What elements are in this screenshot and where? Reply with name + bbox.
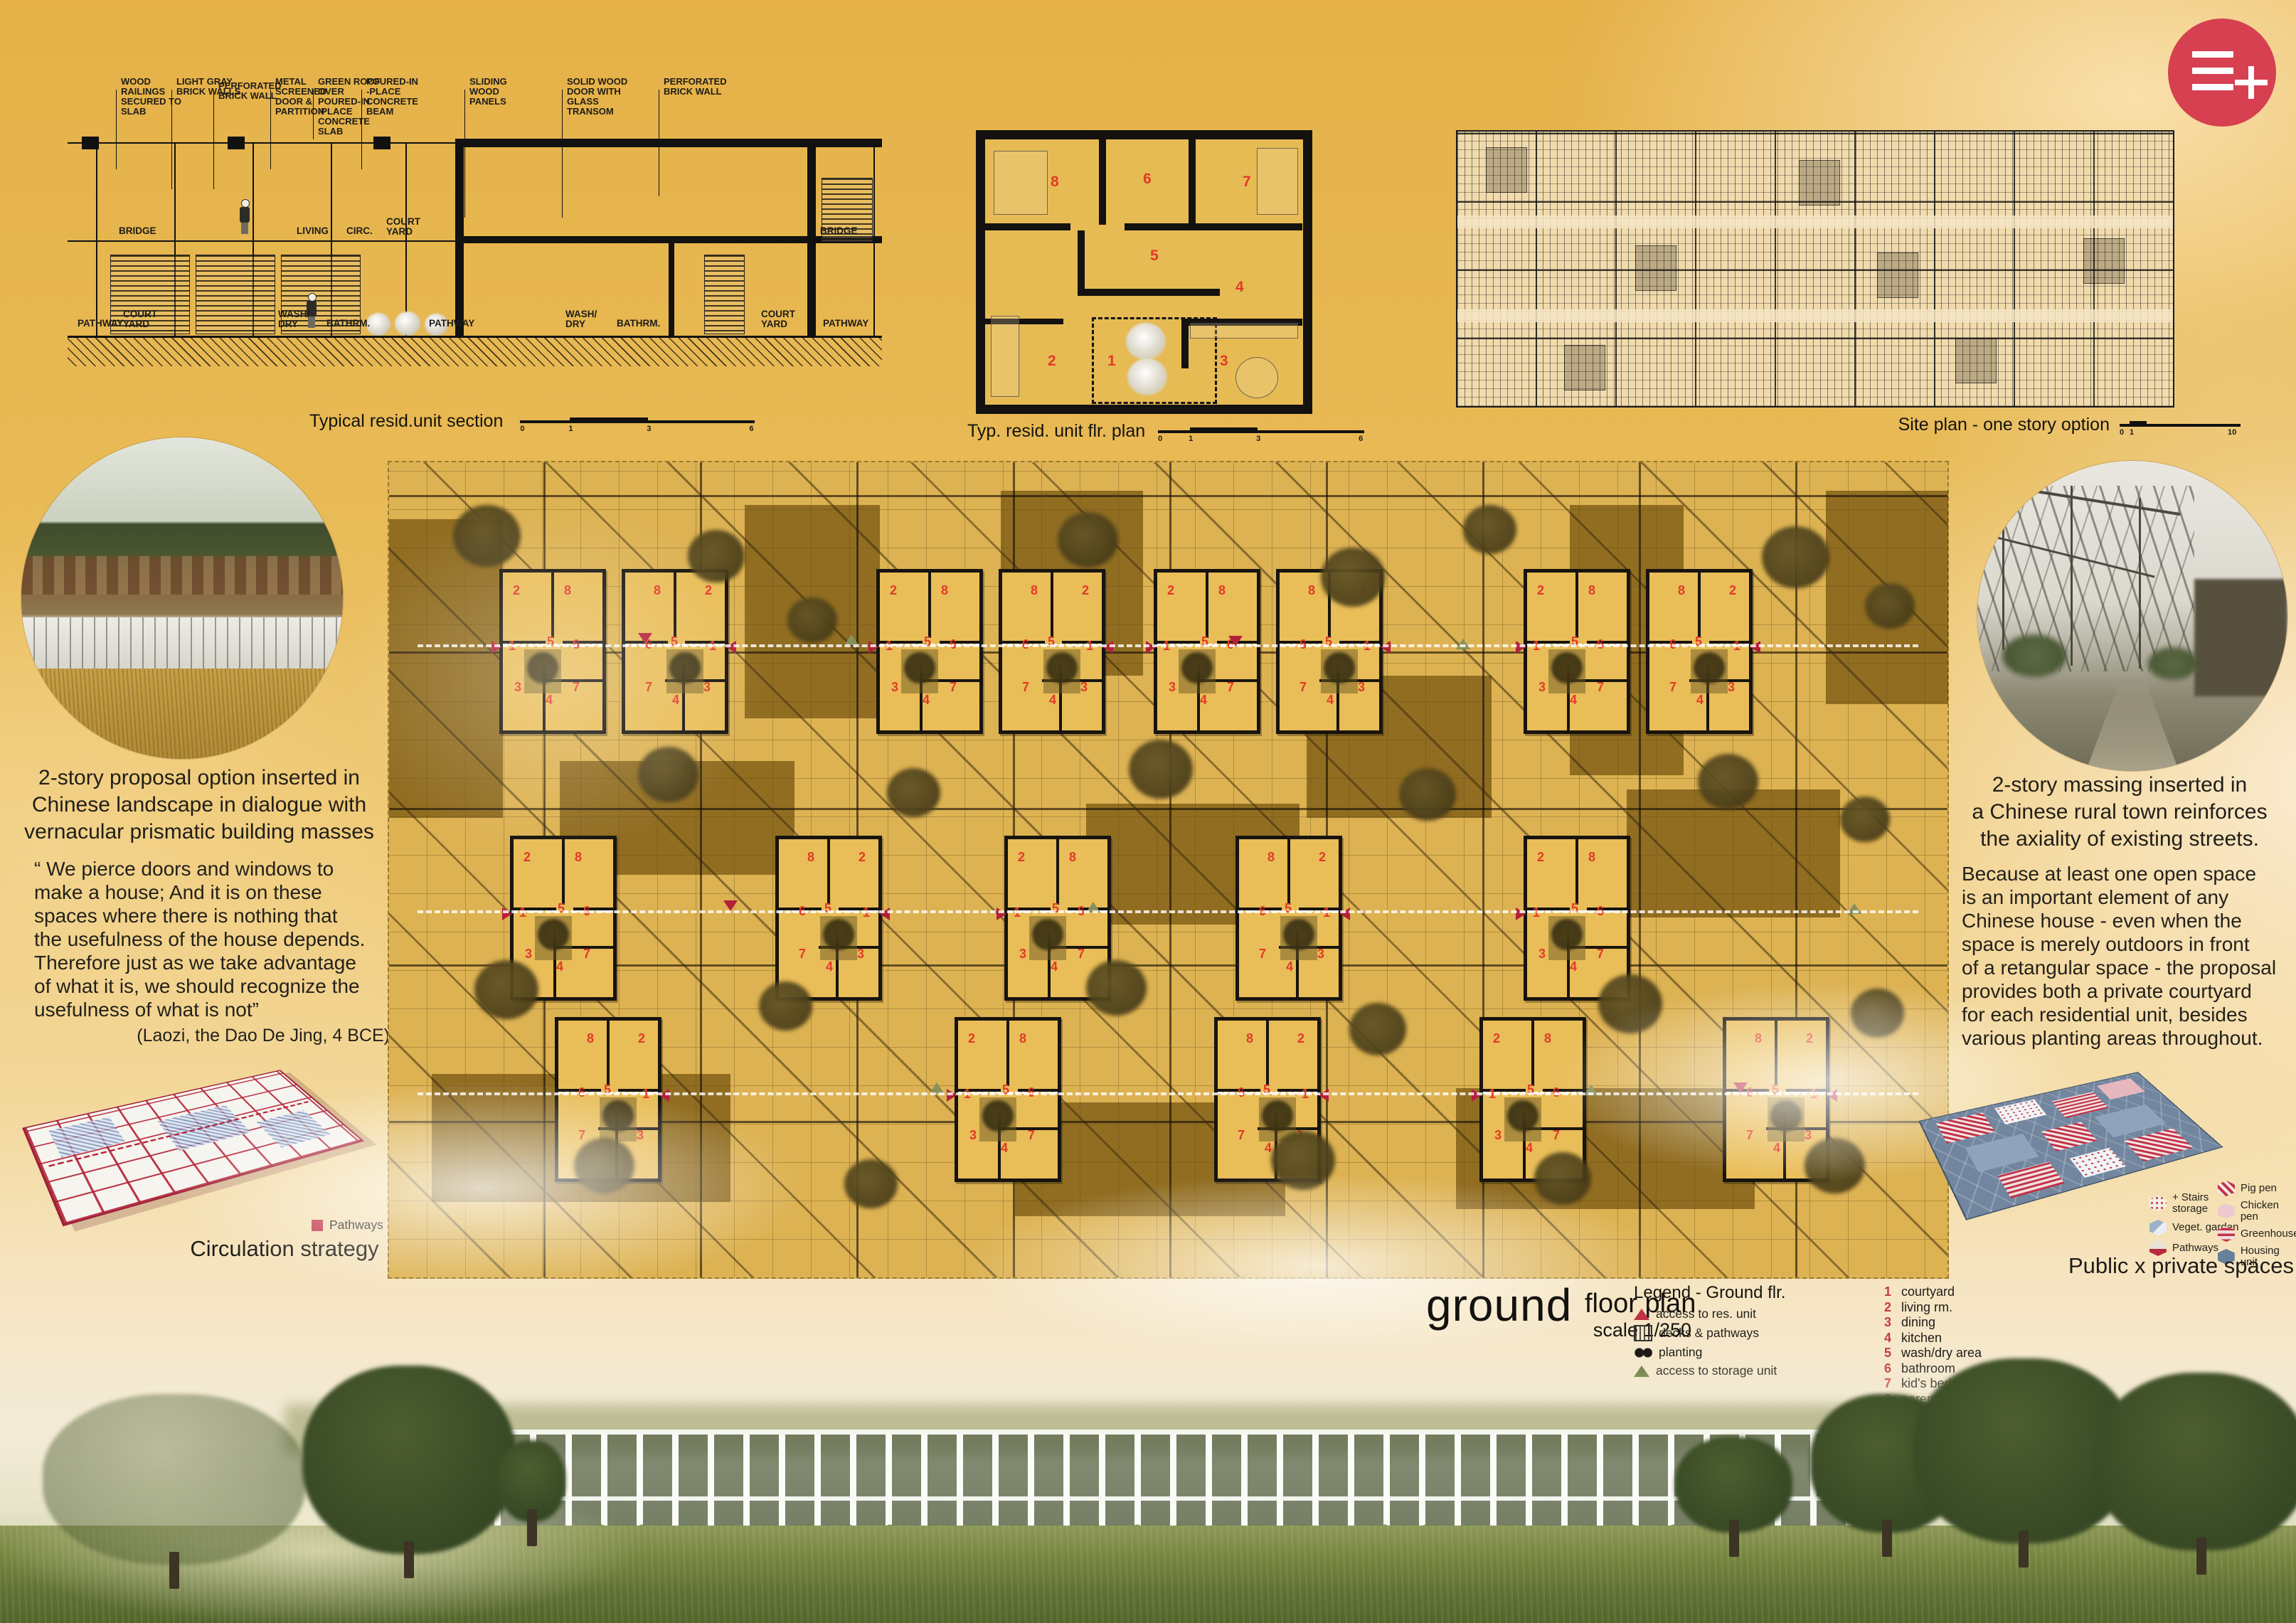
room-number: 5 <box>1150 248 1159 265</box>
right-paragraph: Because at least one open space is an im… <box>1962 862 2296 1050</box>
plan-tree <box>1805 1138 1865 1193</box>
room-number: 3 <box>1080 681 1088 693</box>
courtyard-tree <box>1283 919 1314 950</box>
plan-tree <box>453 505 521 567</box>
room-list-row: 3dining <box>1881 1315 2095 1331</box>
pig-pen-hex-icon <box>2218 1181 2235 1196</box>
plan-tree <box>1086 960 1147 1016</box>
greenhouse-hex-icon <box>2218 1226 2235 1242</box>
room-number: 7 <box>573 681 580 693</box>
room-label: COURT YARD <box>123 309 157 329</box>
room-number: 8 <box>1588 584 1595 597</box>
bed-furniture <box>994 151 1048 215</box>
courtyard-tree <box>1032 919 1063 950</box>
courtyard-tree <box>1694 652 1725 683</box>
room-number: 2 <box>1167 584 1174 597</box>
plan-tree <box>844 1159 898 1208</box>
room-number: 7 <box>1669 681 1676 693</box>
courtyard-tree <box>982 1100 1014 1132</box>
access-triangle-icon <box>491 641 501 654</box>
courtyard-tree <box>669 652 701 683</box>
section-floor-slab <box>455 236 882 243</box>
room-number: 7 <box>1078 947 1085 960</box>
access-triangle-icon <box>996 908 1006 920</box>
access-triangle-icon <box>1516 641 1526 654</box>
pathway-dashed-line <box>418 644 1918 647</box>
room-number: 2 <box>859 851 866 863</box>
room-number: 8 <box>1678 584 1685 597</box>
room-number: 2 <box>890 584 897 597</box>
room-number: 2 <box>968 1032 975 1045</box>
courtyard-tree <box>904 652 935 683</box>
dining-table <box>1235 357 1278 398</box>
landscape-rendering <box>0 1355 2296 1623</box>
stairs-storage-hex-icon <box>2149 1196 2167 1211</box>
access-res-unit-icon <box>723 900 738 911</box>
room-label: BRIDGE <box>119 226 156 236</box>
room-number: 4 <box>1001 1142 1008 1154</box>
room-number: 7 <box>1597 947 1604 960</box>
room-number: 3 <box>1169 681 1176 693</box>
plan-tree <box>887 768 940 817</box>
room-label: PATHWAY <box>429 319 474 329</box>
section-callout: POURED-IN -PLACE CONCRETE BEAM <box>366 77 432 117</box>
room-number: 3 <box>1220 353 1228 370</box>
courtyard-tree <box>1127 358 1167 395</box>
room-number: 3 <box>1805 1129 1812 1142</box>
plan-tree <box>1321 548 1385 607</box>
access-triangle-icon <box>1827 1089 1837 1102</box>
room-number: 3 <box>1538 681 1546 693</box>
presentation-board: WOOD RAILINGS SECURED TO SLAB LIGHT GRAY… <box>0 0 2296 1623</box>
unit-plan-cluster: 28156347 <box>999 569 1105 734</box>
tree-trunk <box>404 1541 414 1578</box>
access-triangle-icon <box>1750 641 1760 654</box>
room-number: 2 <box>1493 1032 1500 1045</box>
room-list-row: 2living rm. <box>1881 1300 2095 1316</box>
courtyard-tree <box>1770 1100 1802 1132</box>
plan-tree <box>1058 512 1118 568</box>
plant-bush <box>395 312 420 336</box>
access-triangle-icon <box>1516 908 1526 920</box>
room-number: 7 <box>1553 1129 1560 1142</box>
room-label: COURT YARD <box>761 309 795 329</box>
room-number: 7 <box>1597 681 1604 693</box>
section-scale-bar: 0 1 3 6 <box>520 416 755 432</box>
room-number: 8 <box>575 851 582 863</box>
plan-tree <box>1598 974 1662 1033</box>
unit-plan-cluster: 28156347 <box>499 569 606 734</box>
circulation-axonometric <box>21 1040 356 1225</box>
access-triangle-icon <box>880 908 890 920</box>
tree-trunk <box>2196 1538 2206 1575</box>
courtyard-tree <box>1046 652 1078 683</box>
room-number: 4 <box>1327 693 1334 706</box>
room-label: PATHWAY <box>823 319 868 329</box>
room-number: 8 <box>1755 1032 1762 1045</box>
typical-section-drawing: WOOD RAILINGS SECURED TO SLAB LIGHT GRAY… <box>68 71 882 448</box>
plan-tree <box>1851 989 1904 1038</box>
plan-tree <box>474 960 538 1019</box>
access-triangle-icon <box>1381 641 1391 654</box>
tree <box>1675 1437 1792 1533</box>
room-list-row: 1courtyard <box>1881 1284 2095 1300</box>
room-number: 3 <box>1494 1129 1502 1142</box>
public-private-caption: Public x private spaces <box>2013 1253 2294 1279</box>
room-number: 7 <box>645 681 652 693</box>
tree <box>302 1366 516 1554</box>
unit-floor-plan: 8 6 7 5 4 2 1 3 <box>976 130 1312 414</box>
tree-trunk <box>527 1509 537 1546</box>
room-number: 8 <box>807 851 814 863</box>
unit-plan-scale-bar: 0 1 3 6 <box>1158 426 1364 442</box>
room-number: 8 <box>564 584 571 597</box>
room-number: 7 <box>1746 1129 1753 1142</box>
room-number: 7 <box>1022 681 1029 693</box>
room-number: 3 <box>703 681 711 693</box>
room-number: 2 <box>1806 1032 1813 1045</box>
room-label: BATHRM. <box>326 319 370 329</box>
room-number: 2 <box>1537 851 1544 863</box>
room-number: 4 <box>546 693 553 706</box>
plan-tree <box>1349 1003 1406 1055</box>
plan-tree <box>1129 740 1193 799</box>
plan-tree <box>688 530 745 582</box>
plan-tree <box>1865 583 1915 629</box>
plan-tree <box>759 981 812 1031</box>
tree-trunk <box>1729 1520 1739 1557</box>
site-plan-scale-bar: 0 1 10 <box>2120 420 2241 435</box>
room-number: 4 <box>923 693 930 706</box>
right-caption: 2-story massing inserted in a Chinese ru… <box>1949 772 2290 853</box>
ground-title-big: ground <box>1426 1279 1572 1331</box>
access-triangle-icon <box>947 1089 957 1102</box>
courtyard-tree <box>538 919 569 950</box>
section-callout: SLIDING WOOD PANELS <box>469 77 535 107</box>
room-number: 2 <box>523 851 531 863</box>
room-label: WASH/ DRY <box>278 309 309 329</box>
access-triangle-icon <box>868 641 878 654</box>
room-number: 4 <box>826 960 833 973</box>
room-number: 8 <box>1051 174 1059 191</box>
unit-plan-cluster: 28156347 <box>955 1017 1061 1182</box>
laozi-quote: “ We pierce doors and windows to make a … <box>34 857 390 1021</box>
room-label: BRIDGE <box>820 226 858 236</box>
unit-plan-cluster: 28156347 <box>1524 569 1630 734</box>
room-number: 7 <box>1238 1129 1245 1142</box>
room-label: COURT YARD <box>386 217 420 237</box>
room-number: 2 <box>1048 353 1056 370</box>
room-number: 2 <box>1537 584 1544 597</box>
sofa-furniture <box>991 316 1019 397</box>
room-list-row: 4kitchen <box>1881 1331 2095 1346</box>
room-number: 2 <box>1018 851 1025 863</box>
unit-plan-cluster: 28156347 <box>1646 569 1753 734</box>
access-triangle-icon <box>1103 641 1113 654</box>
tree-trunk <box>2019 1531 2029 1568</box>
room-number: 3 <box>1538 947 1546 960</box>
access-res-unit-icon <box>1733 1082 1748 1093</box>
plan-tree <box>1399 768 1456 821</box>
access-triangle-icon <box>726 641 736 654</box>
left-caption: 2-story proposal option inserted in Chin… <box>14 765 384 846</box>
ground-hatch <box>68 336 882 366</box>
unit-plan-cluster: 28156347 <box>775 836 882 1001</box>
courtyard-tree <box>602 1100 634 1132</box>
room-number: 4 <box>556 960 563 973</box>
room-number: 4 <box>1235 279 1244 296</box>
room-number: 7 <box>1243 174 1251 191</box>
room-number: 4 <box>1696 693 1704 706</box>
room-number: 4 <box>1570 693 1577 706</box>
room-number: 3 <box>1019 947 1026 960</box>
unit-plan-cluster: 28156347 <box>1235 836 1342 1001</box>
section-callout: SOLID WOOD DOOR WITH GLASS TRANSOM <box>567 77 632 117</box>
room-number: 3 <box>891 681 898 693</box>
chicken-pen-hex-icon <box>2218 1203 2235 1219</box>
access-storage-icon <box>930 1082 944 1093</box>
room-number: 7 <box>1227 681 1234 693</box>
room-number: 8 <box>1588 851 1595 863</box>
room-number: 8 <box>1544 1032 1551 1045</box>
room-number: 7 <box>583 947 590 960</box>
room-number: 2 <box>638 1032 645 1045</box>
room-number: 8 <box>1069 851 1076 863</box>
room-label: BATHRM. <box>617 319 660 329</box>
unit-plan-cluster: 28156347 <box>876 569 983 734</box>
room-number: 4 <box>1265 1142 1272 1154</box>
room-label: PATHWAY <box>78 319 123 329</box>
room-number: 6 <box>1143 171 1152 188</box>
room-number: 8 <box>1031 584 1038 597</box>
room-number: 4 <box>1200 693 1207 706</box>
room-number: 1 <box>1107 353 1116 370</box>
plan-tree <box>574 1138 634 1193</box>
room-number: 4 <box>672 693 679 706</box>
courtyard-tree <box>1262 1100 1293 1132</box>
plan-tree <box>1840 797 1890 842</box>
room-number: 7 <box>1300 681 1307 693</box>
access-triangle-icon <box>659 1089 669 1102</box>
tree-trunk <box>169 1552 179 1589</box>
room-label: LIVING <box>297 226 329 236</box>
room-label: CIRC. <box>346 226 373 236</box>
room-number: 2 <box>513 584 520 597</box>
screen-panel <box>704 255 745 334</box>
room-number: 8 <box>587 1032 594 1045</box>
access-storage-icon <box>844 634 859 645</box>
room-number: 8 <box>1267 851 1275 863</box>
tree <box>2095 1373 2296 1550</box>
hatched-square-icon <box>1634 1325 1652 1341</box>
rural-landscape-photo <box>21 437 343 759</box>
room-number: 3 <box>1358 681 1365 693</box>
room-number: 4 <box>1773 1142 1780 1154</box>
section-callout: PERFORATED BRICK WALL <box>218 81 284 101</box>
plan-tree <box>1762 526 1829 588</box>
room-number: 4 <box>1049 693 1056 706</box>
courtyard-tree <box>1181 652 1213 683</box>
room-number: 8 <box>1246 1032 1253 1045</box>
room-number: 3 <box>637 1129 644 1142</box>
unit-plan-cluster: 28156347 <box>1154 569 1260 734</box>
room-number: 2 <box>1082 584 1089 597</box>
ground-legend-title: Legend - Ground flr. <box>1634 1283 1819 1303</box>
plan-tree <box>638 747 698 802</box>
three-lines-plus-logo-icon <box>2168 18 2276 127</box>
veget-garden-hex-icon <box>2149 1220 2167 1235</box>
unit-plan-cluster: 28156347 <box>622 569 728 734</box>
section-callout: PERFORATED BRICK WALL <box>664 77 729 97</box>
unit-plan-caption: Typ. resid. unit flr. plan <box>967 421 1145 442</box>
kitchen-counter <box>1190 323 1298 339</box>
room-number: 4 <box>1526 1142 1533 1154</box>
tree-trunk <box>1882 1520 1892 1557</box>
plan-tree <box>1463 505 1516 554</box>
pathway-dashed-line <box>418 910 1918 913</box>
access-triangle-icon <box>1472 1089 1482 1102</box>
plan-tree <box>787 597 837 643</box>
access-triangle-icon <box>1319 1089 1329 1102</box>
access-res-unit-icon <box>638 633 652 644</box>
site-plan-drawing <box>1457 132 2173 406</box>
courtyard-tree <box>1551 919 1583 950</box>
circulation-legend: Pathways <box>312 1218 383 1233</box>
room-label: WASH/ DRY <box>565 309 597 329</box>
room-number: 7 <box>1028 1129 1035 1142</box>
room-number: 3 <box>857 947 864 960</box>
room-number: 3 <box>969 1129 977 1142</box>
section-wall <box>807 144 816 336</box>
red-triangle-icon <box>1634 1309 1649 1320</box>
room-number: 3 <box>514 681 521 693</box>
room-number: 8 <box>1019 1032 1026 1045</box>
room-number: 2 <box>1319 851 1326 863</box>
room-number: 3 <box>1317 947 1324 960</box>
tree <box>43 1394 306 1565</box>
courtyard-tree <box>1507 1100 1538 1132</box>
bed-furniture <box>1257 148 1298 215</box>
room-number: 4 <box>1051 960 1058 973</box>
pathway-dashed-line <box>418 1092 1918 1095</box>
room-number: 7 <box>578 1129 585 1142</box>
room-number: 7 <box>799 947 806 960</box>
access-triangle-icon <box>502 908 512 920</box>
room-number: 3 <box>1728 681 1735 693</box>
room-number: 8 <box>1218 584 1226 597</box>
access-triangle-icon <box>1340 908 1350 920</box>
room-number: 2 <box>1729 584 1736 597</box>
courtyard-tree <box>1324 652 1355 683</box>
site-plan-caption: Site plan - one story option <box>1898 415 2110 435</box>
courtyard-tree <box>1126 323 1166 360</box>
room-number: 2 <box>705 584 712 597</box>
room-number: 7 <box>1259 947 1266 960</box>
ground-floor-plan-drawing: 2815634728156347281563472815634728156347… <box>388 461 1949 1279</box>
section-wall <box>455 144 464 336</box>
plan-tree <box>1534 1152 1591 1205</box>
section-roof-beam <box>455 139 882 147</box>
unit-plan-cluster: 28156347 <box>1524 836 1630 1001</box>
room-number: 4 <box>1286 960 1293 973</box>
sliding-wood-panel <box>196 255 275 334</box>
access-triangle-icon <box>1146 641 1156 654</box>
courtyard-tree <box>527 652 558 683</box>
room-number: 8 <box>654 584 661 597</box>
section-caption: Typical resid.unit section <box>309 411 503 432</box>
courtyard-tree <box>823 919 854 950</box>
room-number: 8 <box>941 584 948 597</box>
plan-tree <box>1271 1131 1335 1190</box>
greenhouse-street-photo <box>1977 461 2287 771</box>
room-number: 7 <box>950 681 957 693</box>
room-number: 2 <box>1297 1032 1304 1045</box>
room-number: 4 <box>1570 960 1577 973</box>
room-number: 8 <box>1308 584 1315 597</box>
plan-tree <box>1698 754 1758 809</box>
room-number: 3 <box>525 947 532 960</box>
pathways-square-icon <box>312 1220 323 1231</box>
courtyard-tree <box>1551 652 1583 683</box>
